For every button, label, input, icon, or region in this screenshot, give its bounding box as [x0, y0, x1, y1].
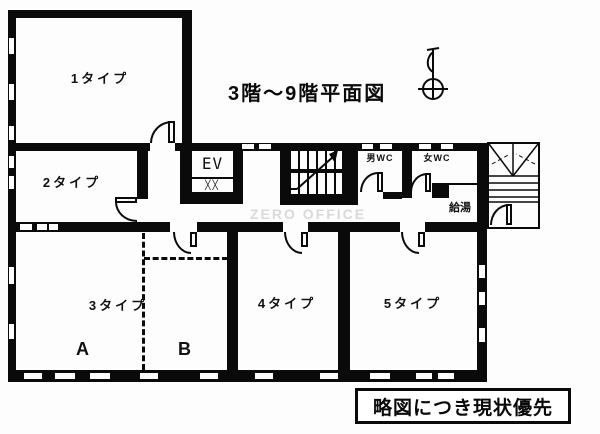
wc-wall [432, 183, 447, 198]
elevator-wall [180, 192, 243, 204]
room-label-type2: 2タイプ [12, 172, 132, 190]
window-mark [55, 373, 75, 379]
window-mark [259, 144, 271, 149]
watermark: ZERO OFFICE [250, 206, 366, 222]
door-arc [284, 232, 302, 254]
wall [8, 10, 190, 18]
elevator-door-marks: ╳╳ [192, 179, 233, 192]
door-arc [401, 232, 419, 254]
window-mark [479, 265, 485, 278]
window-mark [255, 373, 273, 379]
window-mark [438, 373, 454, 379]
partition-dashed-horizontal [144, 257, 228, 260]
wall [308, 222, 400, 232]
floor-plan: EV ╳╳ 1タイプ 2タイプ 3タイプ A B 4タイプ 5タイプ 男WC 女… [0, 0, 600, 434]
door-leaf [190, 232, 197, 247]
room-label-type3-b: B [172, 338, 197, 360]
compass-north-icon [413, 44, 455, 106]
window-mark [9, 84, 14, 100]
door-leaf [168, 121, 175, 143]
wc-women-label: 女WC [412, 150, 462, 165]
wall [8, 222, 170, 232]
window-mark [90, 373, 110, 379]
window-mark [140, 373, 158, 379]
disclaimer-caption: 略図につき現状優先 [355, 388, 571, 424]
window-mark [380, 144, 392, 149]
window-mark [200, 373, 218, 379]
wall [8, 143, 150, 151]
wall [182, 10, 192, 150]
room-label-type3: 3タイプ [58, 295, 178, 313]
door-leaf [506, 204, 512, 225]
door-arc [173, 232, 191, 254]
page-title: 3階〜9階平面図 [228, 77, 386, 106]
disclaimer-text: 略図につき現状優先 [373, 393, 553, 420]
window-mark [479, 292, 485, 305]
window-mark [24, 373, 42, 379]
door-leaf [301, 232, 308, 247]
room-label-type3-a: A [70, 338, 95, 360]
stair-direction-arrow [289, 148, 344, 196]
door-arc [115, 202, 137, 222]
window-mark [9, 324, 14, 339]
window-mark [479, 328, 485, 342]
window-mark [419, 144, 431, 149]
door-leaf [377, 172, 383, 192]
window-mark [9, 126, 14, 140]
elevator-label: EV [192, 150, 233, 177]
window-mark [37, 224, 47, 230]
hot-water-alcove [447, 183, 477, 198]
room-label-type4: 4タイプ [227, 293, 347, 311]
window-mark [320, 373, 338, 379]
window-mark [9, 267, 14, 284]
window-mark [441, 144, 453, 149]
wall [477, 143, 487, 382]
room-label-type5: 5タイプ [353, 293, 473, 311]
door-leaf [418, 232, 425, 247]
window-mark [416, 373, 432, 379]
wc-wall [402, 192, 411, 198]
wc-men-label: 男WC [358, 150, 402, 165]
wall [137, 150, 148, 199]
window-mark [370, 373, 390, 379]
window-mark [242, 144, 254, 149]
window-mark [9, 156, 14, 168]
hot-water-label: 給湯 [440, 199, 480, 215]
door-arc [360, 172, 378, 192]
room-label-type1: 1タイプ [40, 68, 160, 86]
door-leaf [425, 173, 431, 192]
window-mark [49, 224, 58, 230]
wall [197, 222, 283, 232]
window-mark [9, 38, 14, 54]
window-mark [20, 224, 32, 230]
wc-wall [383, 192, 402, 199]
window-mark [362, 144, 373, 149]
